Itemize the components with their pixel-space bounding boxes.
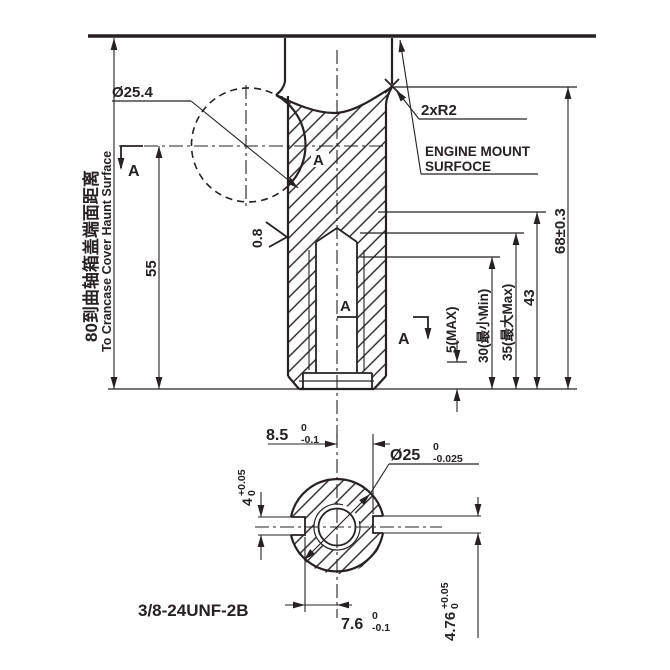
dia254-label: Ø25.4 (112, 84, 154, 101)
section-letter-right: A (398, 331, 410, 348)
crankshaft-drawing: 80到曲轴箱盖端面距离 To Crancase Cover Haunt Surf… (0, 0, 670, 670)
dim43-label: 43 (521, 289, 538, 306)
surface-roughness-icon (266, 222, 287, 247)
dim4-label-group: 4 +0.05 0 (236, 469, 258, 506)
dim476-label: 4.76 (442, 612, 459, 641)
mount-label-1: ENGINE MOUNT (425, 144, 531, 159)
dim85-tol-upper: 0 (301, 422, 307, 434)
upper-view (88, 36, 596, 440)
dia25-label: Ø25 (390, 447, 420, 464)
dim5max-label: 5(MAX) (444, 307, 459, 354)
dim476-tol-lower: 0 (449, 603, 461, 609)
fillet-label: 2xR2 (421, 102, 457, 119)
mount-label-2: SURFOCE (425, 159, 491, 174)
dim4-label: 4 (239, 498, 255, 506)
left-dim-label-en: To Crancase Cover Haunt Surface (100, 151, 114, 352)
dim30-label: 30(最小Min) (476, 289, 491, 363)
dim4-tol-lower: 0 (246, 490, 258, 496)
dim76-tol-upper: 0 (372, 610, 378, 622)
dia25-tol-lower: -0.025 (433, 453, 463, 465)
left-dim-label-zh: 80到曲轴箱盖端面距离 (81, 170, 101, 342)
body-right-edge (386, 87, 392, 376)
neck-left-fillet (276, 82, 285, 95)
section-letter-inner-top: A (313, 152, 324, 169)
section-marker-right (413, 317, 428, 338)
dim35-label: 35(最大Max) (499, 284, 515, 361)
dim85-label: 8.5 (266, 427, 288, 444)
dim55-label: 55 (143, 260, 160, 277)
dim76-tol-lower: -0.1 (372, 622, 390, 634)
dia25-tol-upper: 0 (433, 441, 439, 453)
dim76-label: 7.6 (341, 616, 363, 633)
roughness-label: 0.8 (249, 228, 265, 248)
section-letter-inner-bottom: A (340, 298, 351, 315)
thread-spec-label: 3/8-24UNF-2B (138, 601, 249, 620)
dim85-tol-lower: -0.1 (301, 434, 319, 446)
dia254-leader (191, 101, 298, 188)
crankpin-hidden-circle (191, 88, 288, 202)
dim476-label-group: 4.76 +0.05 0 (439, 582, 461, 641)
mount-leader (400, 40, 421, 174)
dim68-label: 68±0.3 (552, 208, 569, 254)
section-letter-left: A (128, 163, 140, 180)
engineering-drawing-canvas: 80到曲轴箱盖端面距离 To Crancase Cover Haunt Surf… (0, 0, 670, 670)
